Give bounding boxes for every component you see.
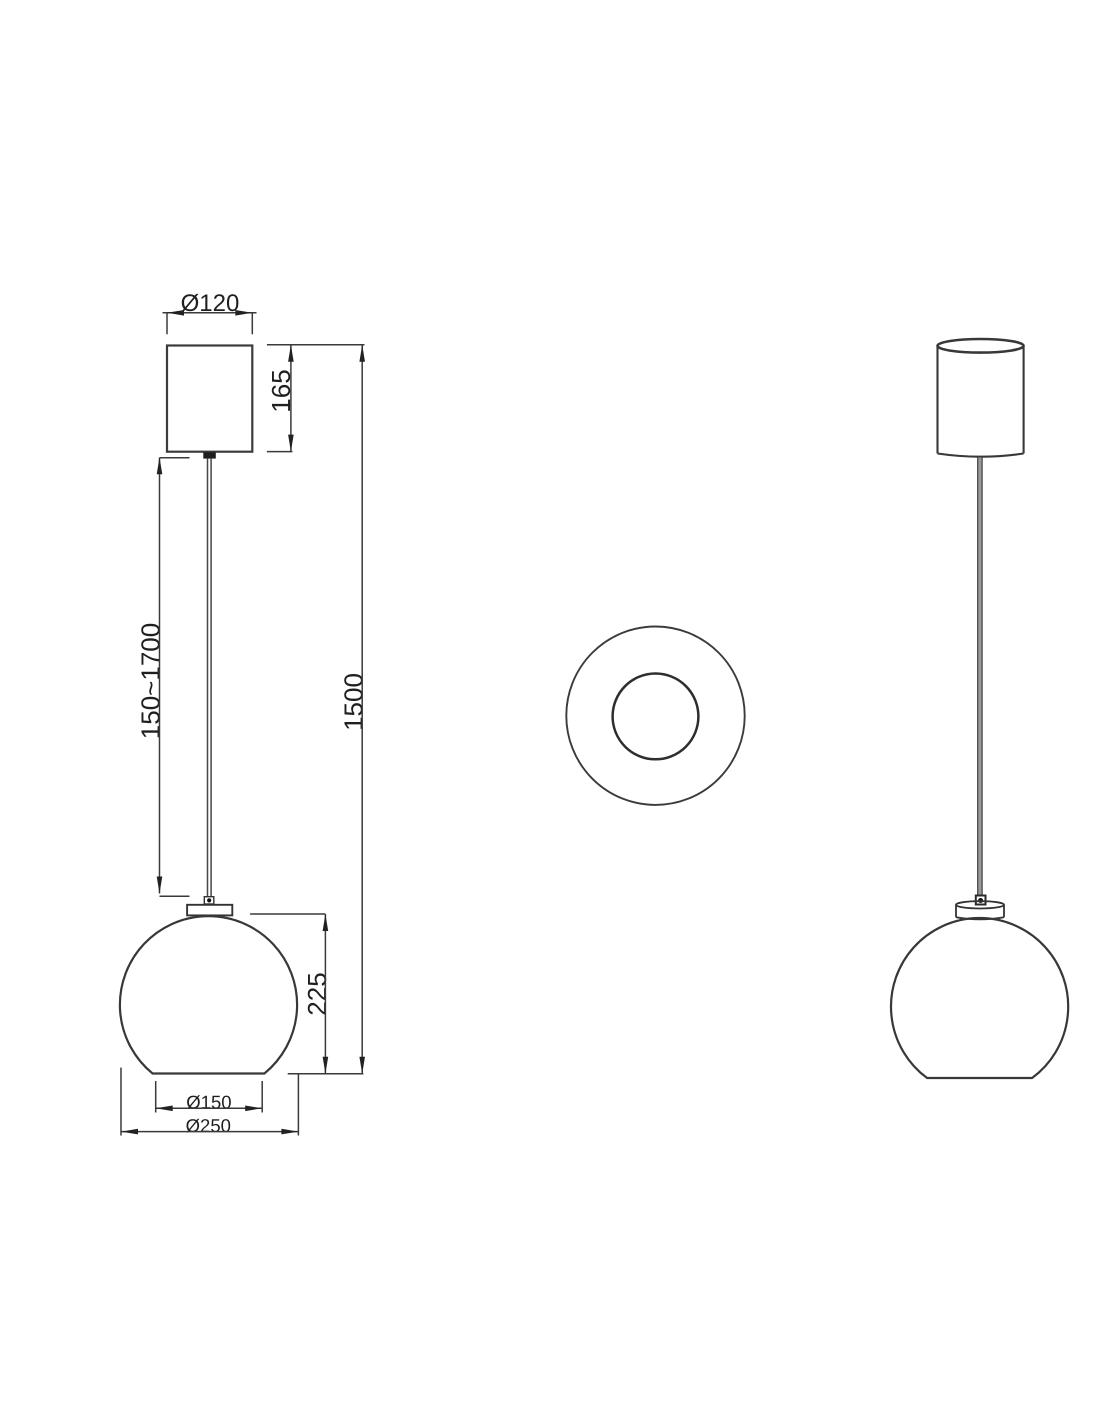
svg-text:225: 225 [302, 972, 332, 1015]
svg-text:1500: 1500 [339, 673, 369, 731]
svg-text:150~1700: 150~1700 [135, 623, 165, 739]
svg-text:Ø150: Ø150 [186, 1091, 231, 1112]
svg-text:Ø250: Ø250 [186, 1115, 231, 1136]
